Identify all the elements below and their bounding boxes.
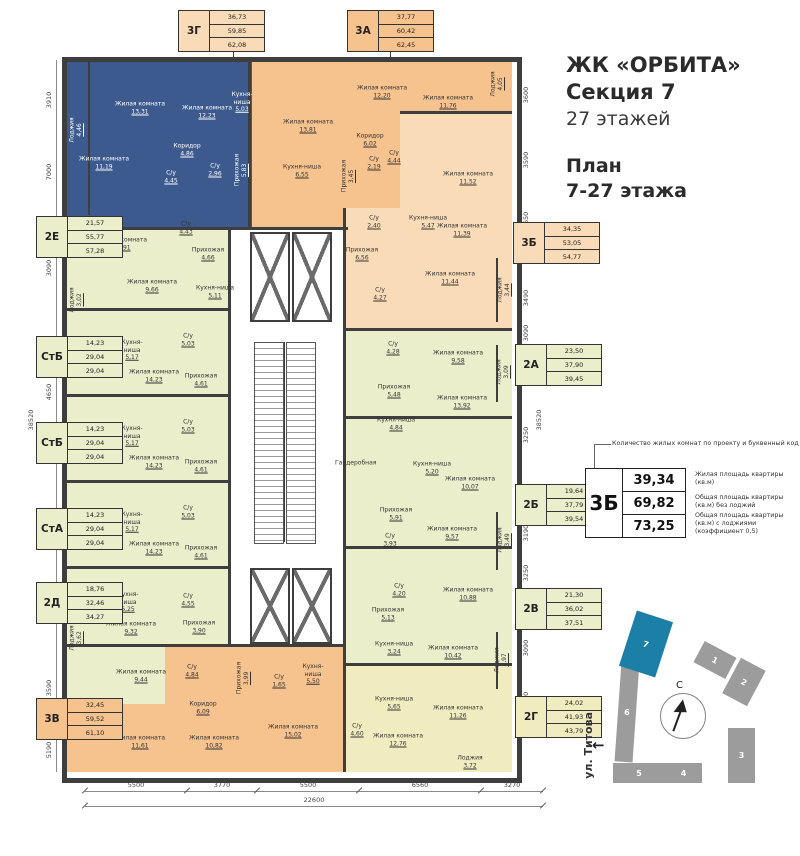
dimension-label: 3190 <box>522 525 530 542</box>
code-box-stb1: СтБ14,2329,0429,04 <box>36 336 123 378</box>
room-area: 5,03 <box>224 106 260 114</box>
room-label: С/у4,44 <box>383 150 405 165</box>
room-label: Жилая комната11,26 <box>433 705 483 720</box>
area-value: 34,27 <box>68 610 122 623</box>
north-label: С <box>676 680 683 691</box>
room-area: 5,48 <box>372 391 416 399</box>
legend-total-area: 69,82 <box>623 492 685 515</box>
area-value: 37,90 <box>547 359 601 373</box>
room-area: 2,96 <box>204 170 226 178</box>
room-name: Коридор <box>356 133 383 141</box>
room-name: Лоджия <box>69 117 77 142</box>
apartment-code: 3Б <box>514 223 545 263</box>
room-name: Жилая комната <box>423 95 473 103</box>
area-value: 60,42 <box>379 25 433 39</box>
dimension-line <box>85 791 543 792</box>
room-label: С/у2,96 <box>204 163 226 178</box>
room-name: С/у <box>383 150 405 158</box>
room-area: 4,86 <box>173 150 200 158</box>
area-value: 37,77 <box>379 11 433 25</box>
legend-connector-line <box>594 444 611 469</box>
code-box-2e: 2Е21,5755,7757,28 <box>36 216 123 258</box>
room-area: 4,61 <box>179 552 223 560</box>
legend-descriptions: Жилая площадь квартиры (кв.м) Общая площ… <box>695 468 800 536</box>
room-area: 6,02 <box>356 140 383 148</box>
area-value: 29,04 <box>68 450 122 463</box>
room-label: Жилая комната15,02 <box>268 724 318 739</box>
area-value: 29,04 <box>68 351 122 365</box>
elevator-shaft <box>250 568 290 644</box>
area-value: 14,23 <box>68 509 122 523</box>
room-label: С/у5,03 <box>177 419 199 434</box>
room-area: 3,99 <box>243 662 251 694</box>
room-area: 5,03 <box>177 512 199 520</box>
room-name: С/у <box>181 664 203 672</box>
dimension-label: 3600 <box>522 87 530 104</box>
room-name: Прихожая <box>179 459 223 467</box>
area-value: 29,04 <box>68 536 122 549</box>
room-label: Кухня-ниша5,11 <box>195 285 235 300</box>
room-name: Жилая комната <box>437 223 487 231</box>
room-name: Лоджия <box>497 277 505 302</box>
room-label: Жилая комната13,81 <box>283 119 333 134</box>
room-area: 2,97 <box>501 647 509 672</box>
room-name: Коридор <box>173 143 200 151</box>
room-name: С/у <box>160 170 182 178</box>
room-label: Прихожая5,48 <box>372 384 416 399</box>
room-area: 11,44 <box>425 278 475 286</box>
room-label: Прихожая5,83 <box>234 154 249 186</box>
room-area: 3,49 <box>504 527 512 552</box>
building-1: 1 <box>693 641 736 679</box>
room-label: Жилая комната11,19 <box>79 156 129 171</box>
legend-living-area: 39,34 <box>623 469 685 492</box>
room-area: 3,62 <box>76 625 84 650</box>
room-area: 4,46 <box>76 117 84 142</box>
room-label: Кухня-ниша5,65 <box>374 696 414 711</box>
room-area: 10,07 <box>445 483 495 491</box>
room-area: 14,23 <box>129 548 179 556</box>
apartment-code: СтБ <box>37 423 68 463</box>
room-area: 5,03 <box>177 340 199 348</box>
room-name: Кухня-ниша <box>224 91 260 106</box>
dimension-total-label: 38520 <box>535 410 543 431</box>
room-name: С/у <box>268 674 290 682</box>
room-label: Жилая комната11,76 <box>423 95 473 110</box>
room-name: Жилая комната <box>373 733 423 741</box>
room-label: С/у4,43 <box>175 221 197 236</box>
room-name: С/у <box>388 583 410 591</box>
room-name: Лоджия <box>443 755 497 763</box>
room-name: Прихожая <box>372 384 416 392</box>
room-name: Прихожая <box>177 620 221 628</box>
room-area: 10,88 <box>443 594 493 602</box>
area-value: 32,46 <box>68 597 122 611</box>
room-name: Прихожая <box>179 545 223 553</box>
room-label: Лоджия3,72 <box>443 755 497 770</box>
room-name: Жилая комната <box>189 735 239 743</box>
room-name: С/у <box>204 163 226 171</box>
room-name: Жилая комната <box>357 85 407 93</box>
room-name: С/у <box>177 505 199 513</box>
room-label: Прихожая3,90 <box>177 620 221 635</box>
apartment-code: 2А <box>516 345 547 385</box>
room-area: 9,66 <box>127 286 177 294</box>
apartment-code: 3А <box>348 11 379 51</box>
room-label: С/у4,84 <box>181 664 203 679</box>
room-area: 5,13 <box>366 614 410 622</box>
room-area: 3,45 <box>348 160 356 192</box>
apartment-code: СтА <box>37 509 68 549</box>
room-name: Жилая комната <box>443 171 493 179</box>
building-5: 5 <box>613 763 665 783</box>
room-area: 6,56 <box>341 254 383 262</box>
legend-desc-living: Жилая площадь квартиры (кв.м) <box>695 468 800 491</box>
apartment-areas: 37,7760,4262,45 <box>379 11 433 51</box>
legend-caption: Количество жилых комнат по проекту и бук… <box>612 440 800 447</box>
room-area: 4,84 <box>376 424 416 432</box>
room-area: 4,60 <box>346 730 368 738</box>
room-area: 5,91 <box>374 514 418 522</box>
room-area: 5,65 <box>374 703 414 711</box>
room-label: Жилая комната12,20 <box>357 85 407 100</box>
room-area: 5,11 <box>195 292 235 300</box>
floor-plan-page: Лоджия4,46Жилая комната13,31Жилая комнат… <box>0 0 800 856</box>
room-name: С/у <box>382 341 404 349</box>
room-name: Жилая комната <box>129 455 179 463</box>
room-label: Лоджия4,05 <box>490 71 505 96</box>
room-area: 13,31 <box>115 108 165 116</box>
room-label: Прихожая3,99 <box>236 662 251 694</box>
room-area: 4,05 <box>497 71 505 96</box>
room-area: 6,55 <box>282 171 322 179</box>
area-value: 14,23 <box>68 337 122 351</box>
room-name: Прихожая <box>234 154 242 186</box>
room-area: 11,19 <box>79 163 129 171</box>
room-area: 3,72 <box>443 762 497 770</box>
room-area: 4,61 <box>179 466 223 474</box>
apartment-areas: 14,2329,0429,04 <box>68 423 122 463</box>
dimension-label: 7000 <box>45 164 53 181</box>
room-label: Жилая комната11,52 <box>443 171 493 186</box>
code-box-stb2: СтБ14,2329,0429,04 <box>36 422 123 464</box>
dimension-label: 3090 <box>522 325 530 342</box>
elevator-shaft <box>292 568 332 644</box>
room-name: Лоджия <box>490 71 498 96</box>
area-value: 18,76 <box>68 583 122 597</box>
apartment-areas: 36,7359,8562,08 <box>210 11 264 51</box>
room-area: 3,90 <box>177 627 221 635</box>
room-name: Жилая комната <box>268 724 318 732</box>
room-label: Прихожая4,61 <box>179 459 223 474</box>
legend-sample-box: 3Б 39,34 69,82 73,25 <box>585 468 686 538</box>
dimension-tick <box>540 802 546 808</box>
room-area: 3,24 <box>374 648 414 656</box>
elevator-shaft <box>250 232 290 322</box>
dimension-label: 4650 <box>45 384 53 401</box>
area-value: 57,28 <box>68 244 122 257</box>
room-area: 4,27 <box>369 294 391 302</box>
dimension-total-label: 38520 <box>27 410 35 431</box>
area-value: 54,77 <box>545 250 599 263</box>
room-area: 9,57 <box>427 533 477 541</box>
room-name: Прихожая <box>366 607 410 615</box>
apartment-code: 2В <box>516 589 547 629</box>
site-plan-map: С ул. Титова ← 1234567 <box>580 600 798 800</box>
legend-total-area-loggia: 73,25 <box>623 515 685 537</box>
room-label: С/у4,20 <box>388 583 410 598</box>
room-label: Прихожая5,91 <box>374 507 418 522</box>
room-label: С/у2,40 <box>363 215 385 230</box>
room-name: Лоджия <box>69 287 77 312</box>
room-label: С/у4,60 <box>346 723 368 738</box>
code-box-3b: 3Б34,3553,0554,77 <box>513 222 600 264</box>
room-area: 4,84 <box>181 671 203 679</box>
room-name: Жилая комната <box>425 271 475 279</box>
area-value: 23,50 <box>547 345 601 359</box>
area-value: 59,52 <box>68 713 122 727</box>
area-value: 14,23 <box>68 423 122 437</box>
room-area: 4,28 <box>382 348 404 356</box>
room-label: Жилая комната10,07 <box>445 476 495 491</box>
title-block: ЖК «ОРБИТА» Секция 7 27 этажей План 7-27… <box>566 52 741 204</box>
room-label: Жилая комната11,39 <box>437 223 487 238</box>
dimension-label: 3090 <box>522 640 530 657</box>
room-label: С/у4,55 <box>177 593 199 608</box>
code-box-sta: СтА14,2329,0429,04 <box>36 508 123 550</box>
apartment-areas: 21,5755,7757,28 <box>68 217 122 257</box>
room-label: Лоджия3,09 <box>496 359 511 384</box>
apartment-areas: 34,3553,0554,77 <box>545 223 599 263</box>
room-area: 6,09 <box>189 708 216 716</box>
room-label: С/у5,03 <box>177 333 199 348</box>
dimension-label: 3090 <box>45 260 53 277</box>
room-name: Кухня-ниша <box>282 164 322 172</box>
room-area: 4,66 <box>186 254 230 262</box>
room-name: Коридор <box>189 701 216 709</box>
dimension-label: 3590 <box>522 152 530 169</box>
section-title: Секция 7 <box>566 79 741 106</box>
room-name: Лоджия <box>496 359 504 384</box>
dimension-line <box>85 806 543 807</box>
room-label: С/у3,93 <box>379 533 401 548</box>
dimension-tick <box>540 787 546 793</box>
room-name: Кухня-ниша <box>374 696 414 704</box>
room-label: Прихожая4,61 <box>179 373 223 388</box>
room-area: 12,20 <box>357 92 407 100</box>
room-label: Жилая комната9,66 <box>127 279 177 294</box>
room-label: Кухня-ниша5,03 <box>224 91 260 114</box>
room-name: Жилая комната <box>428 645 478 653</box>
room-label: Жилая комната14,23 <box>129 455 179 470</box>
room-name: Жилая комната <box>79 156 129 164</box>
staircase <box>254 342 284 544</box>
dimension-total-label: 22600 <box>304 796 325 804</box>
room-label: Лоджия3,49 <box>497 527 512 552</box>
room-name: Кухня-ниша <box>195 285 235 293</box>
room-area: 9,58 <box>433 357 483 365</box>
room-name: Жилая комната <box>445 476 495 484</box>
room-name: Жилая комната <box>129 369 179 377</box>
room-label: Жилая комната10,42 <box>428 645 478 660</box>
room-area: 3,93 <box>379 540 401 548</box>
room-name: Жилая комната <box>127 279 177 287</box>
room-name: С/у <box>369 287 391 295</box>
room-area: 11,52 <box>443 178 493 186</box>
room-label: С/у4,45 <box>160 170 182 185</box>
room-area: 4,44 <box>383 157 405 165</box>
room-label: С/у5,03 <box>177 505 199 520</box>
room-area: 5,83 <box>241 154 249 186</box>
room-label: Жилая комната10,82 <box>189 735 239 750</box>
building-7-highlighted: 7 <box>619 611 673 678</box>
room-name: Жилая комната <box>437 395 487 403</box>
room-name: Кухня-ниша <box>412 461 452 469</box>
street-arrow-icon: ← <box>592 736 605 754</box>
room-label: Кухня-ниша5,20 <box>412 461 452 476</box>
area-value: 21,57 <box>68 217 122 231</box>
room-area: 4,45 <box>160 177 182 185</box>
legend-apartment-code: 3Б <box>586 469 623 537</box>
room-area: 10,82 <box>189 742 239 750</box>
plan-title-line2: 7-27 этажа <box>566 179 741 204</box>
apartment-areas: 32,4559,5261,10 <box>68 699 122 739</box>
apartment-areas: 18,7632,4634,27 <box>68 583 122 623</box>
apartment-code: 2Б <box>516 485 547 525</box>
legend-values: 39,34 69,82 73,25 <box>623 469 685 537</box>
room-name: Прихожая <box>179 373 223 381</box>
area-value: 29,04 <box>68 523 122 537</box>
room-name: Гардеробная <box>335 459 373 467</box>
room-label: С/у1,65 <box>268 674 290 689</box>
room-label: Кухня-ниша5,50 <box>295 663 331 686</box>
room-name: Кухня-ниша <box>408 215 448 223</box>
room-area: 14,23 <box>129 462 179 470</box>
room-name: Кухня-ниша <box>295 663 331 678</box>
apartment-code: 2Г <box>516 697 547 737</box>
room-name: Прихожая <box>374 507 418 515</box>
apartment-areas: 14,2329,0429,04 <box>68 337 122 377</box>
room-area: 12,76 <box>373 740 423 748</box>
legend-desc-total-loggia: Общая площадь квартиры (кв.м) с лоджиями… <box>695 513 800 536</box>
room-label: Коридор4,86 <box>173 143 200 158</box>
room-label: Кухня-ниша6,55 <box>282 164 322 179</box>
area-value: 61,10 <box>68 726 122 739</box>
room-label: Прихожая4,61 <box>179 545 223 560</box>
room-label: Жилая комната11,44 <box>425 271 475 286</box>
room-label: Жилая комната13,92 <box>437 395 487 410</box>
room-name: Прихожая <box>186 247 230 255</box>
building-3: 3 <box>728 728 755 783</box>
room-name: Кухня-ниша <box>376 417 416 425</box>
room-name: С/у <box>363 215 385 223</box>
room-label: Лоджия2,97 <box>494 647 509 672</box>
room-name: Прихожая <box>236 662 244 694</box>
room-name: Жилая комната <box>283 119 333 127</box>
room-area: 3,44 <box>504 277 512 302</box>
legend-desc-total: Общая площадь квартиры (кв.м) без лоджий <box>695 491 800 514</box>
dimension-label: 3250 <box>522 565 530 582</box>
room-label: Прихожая3,45 <box>341 160 356 192</box>
dimension-label: 5190 <box>45 742 53 759</box>
room-label: Кухня-ниша4,84 <box>376 417 416 432</box>
area-value: 32,45 <box>68 699 122 713</box>
building-4: 4 <box>665 763 702 783</box>
area-value: 36,73 <box>210 11 264 25</box>
dimension-label: 3910 <box>45 92 53 109</box>
area-value: 29,04 <box>68 437 122 451</box>
room-name: Жилая комната <box>116 669 166 677</box>
room-name: Лоджия <box>497 527 505 552</box>
room-label: С/у4,27 <box>369 287 391 302</box>
room-name: С/у <box>177 419 199 427</box>
room-name: Жилая комната <box>129 541 179 549</box>
room-name: Прихожая <box>341 160 349 192</box>
room-name: С/у <box>177 593 199 601</box>
room-area: 9,32 <box>106 628 156 636</box>
room-name: С/у <box>346 723 368 731</box>
code-box-3a: 3А37,7760,4262,45 <box>347 10 434 52</box>
room-label: Лоджия3,44 <box>497 277 512 302</box>
room-area: 4,55 <box>177 600 199 608</box>
room-label: Прихожая6,56 <box>341 247 383 262</box>
room-name: Жилая комната <box>433 350 483 358</box>
room-area: 11,76 <box>423 102 473 110</box>
room-label: Прихожая5,13 <box>366 607 410 622</box>
room-label: Жилая комната9,44 <box>116 669 166 684</box>
apartment-code: СтБ <box>37 337 68 377</box>
room-label: Коридор6,09 <box>189 701 216 716</box>
room-name: Жилая комната <box>433 705 483 713</box>
staircase <box>286 342 316 544</box>
apartment-areas: 14,2329,0429,04 <box>68 509 122 549</box>
room-area: 3,02 <box>76 287 84 312</box>
room-name: Лоджия <box>69 625 77 650</box>
room-area: 4,43 <box>175 228 197 236</box>
elevator-shaft <box>292 232 332 322</box>
room-label: Коридор6,02 <box>356 133 383 148</box>
room-area: 4,61 <box>179 380 223 388</box>
apartment-code: 2Д <box>37 583 68 623</box>
room-name: С/у <box>177 333 199 341</box>
area-value: 62,08 <box>210 38 264 51</box>
room-label: Лоджия3,62 <box>69 625 84 650</box>
room-area: 2,19 <box>363 163 385 171</box>
area-value: 34,35 <box>545 223 599 237</box>
plan-title-line1: План <box>566 154 741 179</box>
code-box-2a: 2А23,5037,9039,45 <box>515 344 602 386</box>
project-title: ЖК «ОРБИТА» <box>566 52 741 79</box>
room-name: Лоджия <box>494 647 502 672</box>
room-label: Жилая комната10,88 <box>443 587 493 602</box>
area-value: 55,77 <box>68 231 122 245</box>
room-label: Прихожая4,66 <box>186 247 230 262</box>
room-area: 11,61 <box>115 742 165 750</box>
room-area: 13,92 <box>437 402 487 410</box>
room-name: Жилая комната <box>115 101 165 109</box>
area-value: 53,05 <box>545 237 599 251</box>
floors-subtitle: 27 этажей <box>566 106 741 132</box>
dimension-label: 3490 <box>522 290 530 307</box>
room-name: Жилая комната <box>427 526 477 534</box>
apartment-code: 2Е <box>37 217 68 257</box>
area-value: 62,45 <box>379 38 433 51</box>
room-label: С/у2,19 <box>363 156 385 171</box>
room-area: 1,65 <box>268 681 290 689</box>
room-label: Жилая комната14,23 <box>129 369 179 384</box>
room-area: 3,09 <box>503 359 511 384</box>
room-area: 4,20 <box>388 590 410 598</box>
